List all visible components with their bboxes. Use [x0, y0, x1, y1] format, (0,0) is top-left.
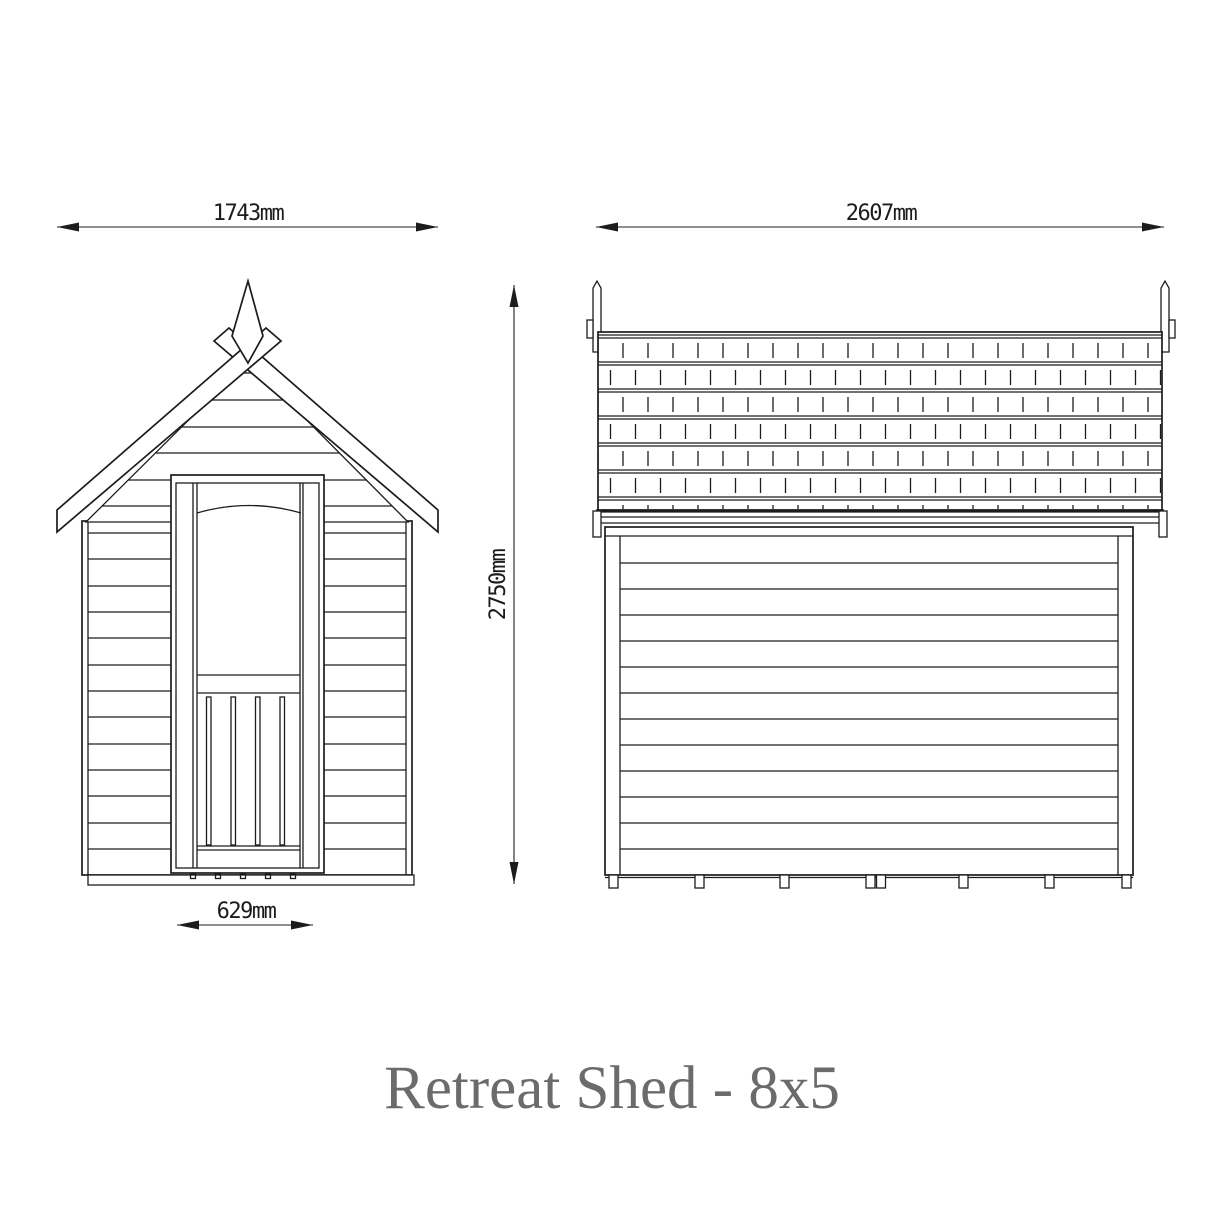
shed-technical-drawing: 1743mm 2607mm 2750mm 629mm Retreat Shed … [0, 0, 1221, 1221]
shed-door [171, 475, 324, 873]
side-elevation [587, 281, 1175, 888]
arrowhead-down-icon [510, 862, 519, 884]
left-eave-drop [593, 511, 601, 537]
drawing-title: Retreat Shed - 8x5 [384, 1055, 840, 1122]
dim-label-side-width: 2607mm [846, 201, 918, 226]
arrowhead-right-icon [291, 921, 313, 930]
front-elevation [57, 281, 438, 885]
dim-label-height: 2750mm [486, 549, 511, 621]
arrowhead-left-icon [596, 223, 618, 232]
side-right-bargeboard-foot [1169, 320, 1175, 338]
side-left-bargeboard-foot [587, 320, 593, 338]
dim-overall-height: 2750mm [486, 285, 519, 884]
dim-front-width: 1743mm [57, 201, 438, 232]
door-frame [171, 475, 324, 873]
side-roof [598, 332, 1162, 510]
dim-label-front-width: 1743mm [213, 201, 285, 226]
arrowhead-left-icon [57, 223, 79, 232]
arrowhead-right-icon [416, 223, 438, 232]
arrowhead-right-icon [1142, 223, 1164, 232]
arrowhead-left-icon [177, 921, 199, 930]
right-eave-drop [1159, 511, 1167, 537]
dim-side-width: 2607mm [596, 201, 1164, 232]
front-base [88, 875, 414, 885]
arrowhead-up-icon [510, 285, 519, 307]
dim-door-width: 629mm [177, 899, 313, 930]
drawing-svg: 1743mm 2607mm 2750mm 629mm Retreat Shed … [0, 0, 1221, 1221]
dim-label-door-width: 629mm [217, 899, 277, 924]
